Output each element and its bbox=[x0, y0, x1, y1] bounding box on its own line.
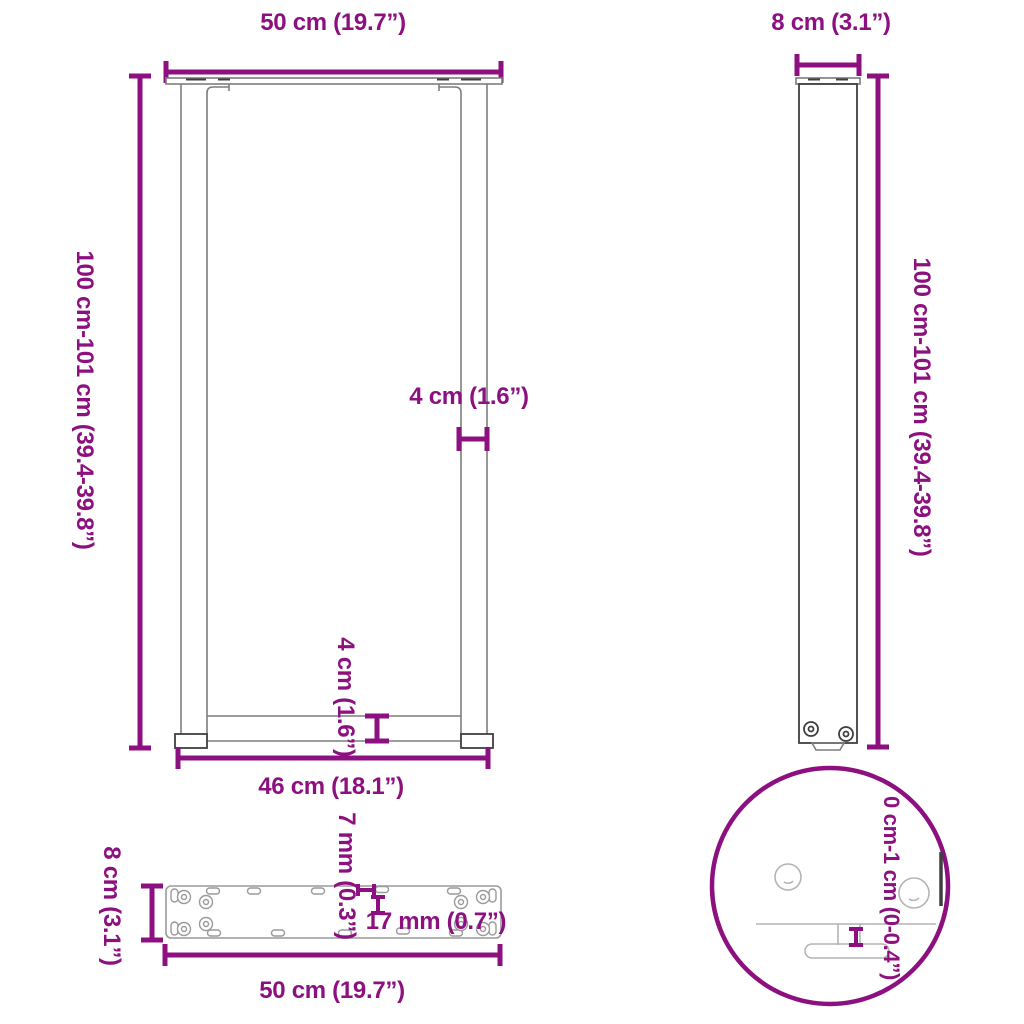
foot-adjustment-label: 0 cm-1 cm (0-0.4”) bbox=[880, 796, 902, 980]
leg-width-label: 4 cm (1.6”) bbox=[409, 385, 528, 409]
front-top-plate bbox=[166, 78, 502, 84]
plate-length-dimension-line bbox=[165, 944, 500, 966]
side-view bbox=[796, 54, 889, 750]
front-left-leg bbox=[181, 84, 229, 734]
side-column bbox=[799, 84, 857, 743]
crossbar-height-label: 4 cm (1.6”) bbox=[333, 637, 357, 756]
plate-depth-label: 8 cm (3.1”) bbox=[99, 846, 123, 965]
front-right-foot bbox=[461, 734, 493, 748]
plate-depth-dimension-line bbox=[141, 886, 163, 940]
dimension-diagram: 50 cm (19.7”) 100 cm-101 cm (39.4-39.8”)… bbox=[0, 0, 1024, 1024]
side-height-dimension-line bbox=[867, 76, 889, 747]
front-height-label: 100 cm-101 cm (39.4-39.8”) bbox=[72, 250, 96, 549]
front-left-foot bbox=[175, 734, 207, 748]
inner-width-label: 46 cm (18.1”) bbox=[258, 775, 404, 799]
technical-drawing bbox=[0, 0, 1024, 1024]
plate-length-label: 50 cm (19.7”) bbox=[259, 979, 405, 1003]
front-height-dimension-line bbox=[129, 76, 151, 748]
slot-length-label: 17 mm (0.7”) bbox=[366, 910, 506, 934]
detail-screws bbox=[775, 864, 929, 908]
foot-detail-view bbox=[712, 768, 948, 1004]
side-width-dimension-line bbox=[797, 54, 859, 76]
foot-adjustment-marker bbox=[849, 929, 863, 945]
front-view bbox=[129, 61, 502, 769]
front-width-label: 50 cm (19.7”) bbox=[260, 11, 406, 35]
side-width-label: 8 cm (3.1”) bbox=[771, 11, 890, 35]
side-foot bbox=[812, 743, 844, 750]
detail-adjustable-foot bbox=[805, 924, 889, 958]
crossbar-height-marker bbox=[365, 716, 389, 741]
side-height-label: 100 cm-101 cm (39.4-39.8”) bbox=[909, 257, 933, 556]
leg-width-marker bbox=[459, 427, 487, 451]
slot-width-label: 7 mm (0.3”) bbox=[334, 812, 358, 939]
detail-circle bbox=[712, 768, 948, 1004]
